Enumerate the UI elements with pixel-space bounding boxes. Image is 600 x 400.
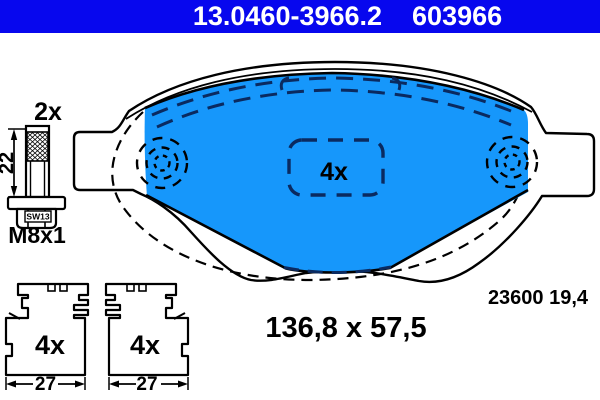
brake-pad-datasheet: 13.0460-3966.2 603966 xyxy=(0,0,600,400)
bolt-thread-label: M8x1 xyxy=(8,222,66,248)
bolt-quantity-label: 2x xyxy=(34,98,62,126)
clip-right-width-dimension: 27 xyxy=(136,374,157,395)
clip-left-quantity-label: 4x xyxy=(35,330,65,360)
pad-quantity-label: 4x xyxy=(320,158,348,186)
clip-right-quantity-label: 4x xyxy=(130,330,160,360)
technical-drawing: 2x 22 SW13 M8x1 4x 23600 19,4 136,8 x 57… xyxy=(0,0,600,400)
pad-wva-number: 23600 19,4 xyxy=(488,287,589,309)
wrench-size-label: SW13 xyxy=(26,212,49,222)
clip-left-width-dimension: 27 xyxy=(35,374,56,395)
pad-size-label: 136,8 x 57,5 xyxy=(265,312,426,344)
bolt-length-dimension: 22 xyxy=(0,152,18,174)
